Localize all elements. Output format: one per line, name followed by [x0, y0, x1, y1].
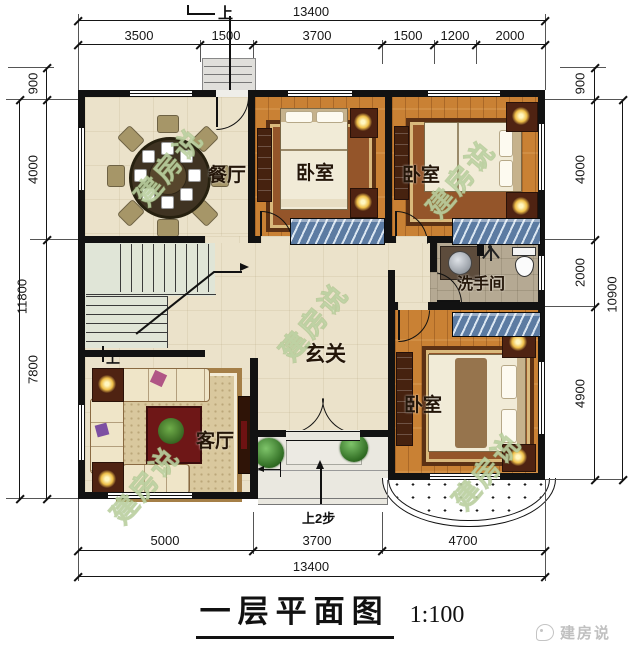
place-setting	[142, 188, 155, 201]
wall-stairs-living	[85, 350, 205, 357]
stairs-opening	[205, 236, 248, 243]
lamp-glow	[98, 470, 116, 488]
back-step-line	[204, 82, 252, 83]
dining-label: 餐厅	[208, 160, 246, 187]
bedroom2-door-opening	[396, 236, 427, 243]
dim-label: 3500	[109, 28, 169, 43]
dining-chair	[157, 219, 179, 237]
extension-line	[78, 14, 79, 90]
page-title: 一层平面图	[196, 586, 394, 639]
extension-line	[545, 306, 595, 307]
dim-label: 4900	[573, 364, 588, 424]
place-setting	[142, 150, 155, 163]
back-steps-leader-line	[229, 16, 231, 90]
brand-logo: 建房说	[536, 620, 636, 644]
back-step-line	[204, 74, 252, 75]
window-living-west	[78, 405, 85, 460]
bathroom-label: 洗手间	[457, 270, 505, 294]
dim-label: 1200	[425, 28, 485, 43]
place-setting	[180, 188, 193, 201]
dim-label: 13400	[281, 559, 341, 574]
wall-bedroom1-bedroom2	[385, 97, 392, 236]
bed-pillow	[499, 160, 513, 187]
bed-blanket-fold	[457, 123, 459, 191]
dining-chair	[157, 115, 179, 133]
back-step-line	[204, 66, 252, 67]
lamp-glow	[512, 107, 530, 125]
extension-line	[6, 498, 78, 499]
entry-steps-label: 上2步	[302, 508, 335, 527]
table-flowers	[158, 418, 184, 444]
lamp-glow	[98, 375, 116, 393]
window-bedroom3-south	[430, 473, 500, 480]
bed-pillow	[499, 130, 513, 157]
bed-headboard	[513, 123, 521, 191]
lamp-glow	[509, 448, 527, 466]
wall-living-hall	[250, 358, 258, 499]
lamp-glow	[512, 197, 530, 215]
wall-entry-left	[258, 430, 286, 437]
dim-line-bottom-chain	[78, 550, 545, 551]
bedroom2-label: 卧室	[402, 160, 440, 187]
dim-line-left-chain	[46, 68, 47, 499]
stairs-lower-flight	[86, 296, 168, 348]
bed-blanket	[455, 358, 487, 448]
extension-line	[78, 499, 79, 581]
sofa-top	[120, 368, 210, 402]
back-steps-leader-line	[187, 5, 189, 14]
logo-face-icon	[536, 624, 554, 641]
sofa-bottom	[122, 464, 190, 494]
dim-label: 4700	[433, 533, 493, 548]
extension-line	[30, 239, 78, 240]
bed-headboard	[517, 355, 525, 451]
dim-line-right-total	[622, 100, 623, 480]
window-bedroom3-east	[538, 362, 545, 434]
dim-line-right-chain	[594, 68, 595, 480]
logo-text: 建房说	[560, 622, 611, 643]
window-dining-north	[130, 90, 192, 97]
dim-label: 3700	[287, 533, 347, 548]
dim-line-top-total	[78, 20, 545, 21]
bed-pillow	[501, 409, 517, 443]
extension-line	[545, 14, 546, 90]
dim-line-bottom-total	[78, 576, 545, 577]
bed-blanket-fold	[281, 149, 347, 151]
dim-label: 2000	[573, 243, 588, 303]
dim-label: 7800	[26, 340, 41, 400]
back-steps-up-label: 上	[218, 2, 233, 23]
bedroom1-label: 卧室	[296, 158, 334, 185]
patio-dot-paving	[389, 478, 549, 520]
extension-line	[545, 239, 595, 240]
window-bathroom-east	[538, 256, 545, 290]
porch-side-arrow-head	[257, 466, 264, 472]
dim-label: 10900	[605, 265, 620, 325]
stairs-up-label: 上	[106, 348, 120, 368]
bay-window-bedroom2	[452, 218, 541, 245]
window-bedroom2-north	[428, 90, 500, 97]
lamp-glow	[354, 193, 372, 211]
wall-entry-right	[360, 430, 388, 437]
dim-tick	[591, 476, 600, 485]
entry-door-sill	[286, 431, 360, 441]
dim-label: 4000	[573, 140, 588, 200]
dim-label: 900	[573, 54, 588, 114]
bedroom1-wardrobe	[257, 128, 272, 202]
living-label: 客厅	[196, 426, 234, 453]
dim-label: 13400	[281, 4, 341, 19]
dim-tick	[43, 495, 52, 504]
title-block: 一层平面图 1:100	[140, 586, 520, 639]
entry-direction-line	[320, 468, 322, 504]
shower-spray-line	[490, 248, 499, 259]
stairs-arrow-head	[240, 263, 249, 271]
bed-foot	[281, 199, 347, 207]
dim-label: 1500	[196, 28, 256, 43]
porch-step-line	[258, 504, 388, 505]
bed-pillow	[501, 365, 517, 399]
window-bedroom2-east	[538, 124, 545, 190]
dim-label: 3700	[287, 28, 347, 43]
patio-inner-ring	[388, 478, 550, 521]
bed-pillow	[285, 111, 313, 123]
hall-label: 玄关	[304, 338, 346, 368]
place-setting	[134, 169, 147, 182]
back-door-leaf	[216, 97, 218, 127]
floor-plan-sheet: 上	[0, 0, 640, 656]
lamp-glow	[354, 113, 372, 131]
toilet-tank	[512, 247, 536, 256]
scale-label: 1:100	[410, 602, 465, 629]
stairs-direction-line	[214, 271, 242, 273]
window-dining-west	[78, 128, 85, 190]
window-living-south	[108, 492, 192, 499]
wall-bathroom-west	[430, 243, 437, 273]
bedroom3-bed	[428, 354, 526, 452]
dim-tick	[16, 495, 25, 504]
place-setting	[161, 142, 174, 155]
shower-symbol	[483, 245, 499, 263]
window-bedroom1-north	[288, 90, 352, 97]
place-setting	[161, 196, 174, 209]
stairs-landing-line	[86, 294, 216, 295]
entry-arrow-head	[316, 460, 324, 469]
dim-tick	[619, 476, 628, 485]
extension-line	[6, 99, 78, 100]
bed-pillow	[316, 111, 344, 123]
porch-step-line	[258, 498, 388, 499]
extension-line	[545, 479, 623, 480]
place-setting	[188, 169, 201, 182]
bedroom3-door-opening	[398, 302, 428, 310]
back-door-opening	[216, 90, 248, 97]
bedroom3-label: 卧室	[404, 390, 442, 417]
dim-label: 900	[26, 54, 41, 114]
dim-label: 5000	[135, 533, 195, 548]
dim-label: 4000	[26, 140, 41, 200]
wall-bedroom3-west	[388, 270, 395, 480]
bathroom-door-opening	[430, 272, 437, 302]
porch-side-mark	[280, 462, 281, 477]
dining-chair	[107, 165, 125, 187]
stairs-upper-flight	[120, 244, 216, 292]
place-setting	[180, 150, 193, 163]
back-steps-leader-line	[187, 13, 215, 15]
dim-label: 11800	[15, 267, 30, 327]
bay-window-bedroom1	[290, 218, 385, 245]
wall-dining-bedroom1	[248, 97, 255, 236]
dim-label: 2000	[480, 28, 540, 43]
bay-window-bedroom3	[452, 312, 541, 337]
porch-edge-line	[387, 480, 388, 505]
tv-screen	[241, 421, 247, 449]
bedroom3-door-leaf	[398, 310, 400, 340]
extension-line	[545, 480, 546, 581]
porch-side-mark	[264, 469, 280, 470]
bedroom1-door-opening	[261, 236, 292, 243]
